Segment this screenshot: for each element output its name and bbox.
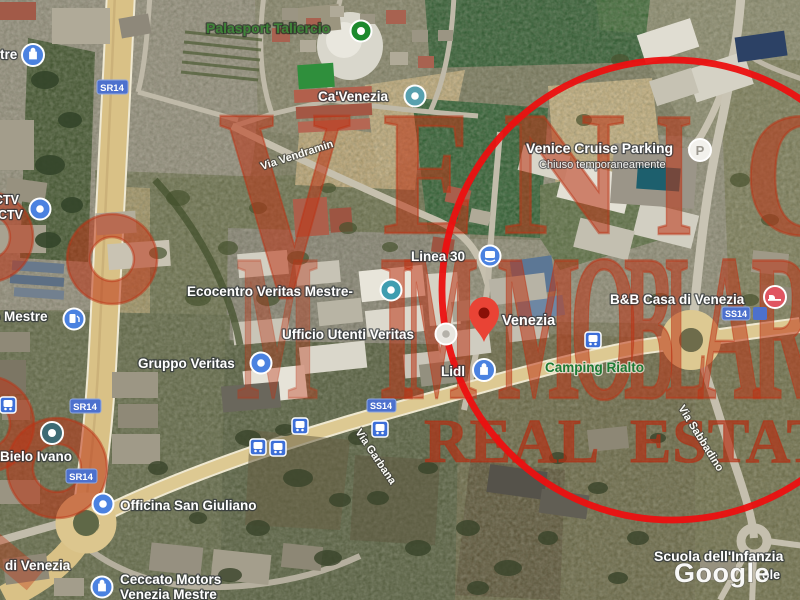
svg-text:Ecocentro Veritas Mestre-: Ecocentro Veritas Mestre- (187, 284, 353, 299)
svg-text:Ufficio Utenti Veritas: Ufficio Utenti Veritas (282, 327, 414, 342)
svg-text:SR14: SR14 (100, 83, 124, 94)
svg-text:di Venezia: di Venezia (5, 558, 71, 573)
svg-text:Venezia: Venezia (502, 313, 556, 329)
svg-text:Camping Rialto: Camping Rialto (545, 360, 644, 375)
svg-text:Lidl: Lidl (441, 364, 465, 379)
svg-text:SR14: SR14 (69, 472, 93, 483)
svg-text:SS14: SS14 (725, 309, 747, 319)
svg-text:CTV: CTV (0, 208, 24, 222)
svg-text:Venezia Mestre: Venezia Mestre (120, 587, 217, 600)
svg-text:Linea 30: Linea 30 (411, 249, 465, 264)
svg-text:CTV: CTV (0, 193, 20, 207)
svg-text:Google: Google (674, 558, 770, 588)
svg-text:Officina San Giuliano: Officina San Giuliano (120, 498, 257, 513)
svg-text:SR14: SR14 (73, 402, 97, 413)
svg-text:tre: tre (0, 47, 18, 62)
svg-text:Ceccato Motors: Ceccato Motors (120, 572, 221, 587)
svg-text:P: P (696, 143, 705, 158)
svg-text:Palasport Taliercio: Palasport Taliercio (206, 20, 330, 36)
svg-text:REAL: REAL (424, 408, 600, 476)
svg-text:Gruppo Veritas: Gruppo Veritas (138, 356, 235, 371)
svg-text:o Mestre: o Mestre (0, 309, 48, 324)
svg-text:Chiuso temporaneamente: Chiuso temporaneamente (539, 159, 666, 171)
svg-text:B&B Casa di Venezia: B&B Casa di Venezia (610, 292, 745, 307)
svg-text:Bielo Ivano: Bielo Ivano (0, 449, 72, 464)
svg-text:Venice Cruise Parking: Venice Cruise Parking (526, 140, 673, 156)
svg-text:SS14: SS14 (370, 401, 392, 411)
svg-text:Ca'Venezia: Ca'Venezia (318, 89, 388, 104)
